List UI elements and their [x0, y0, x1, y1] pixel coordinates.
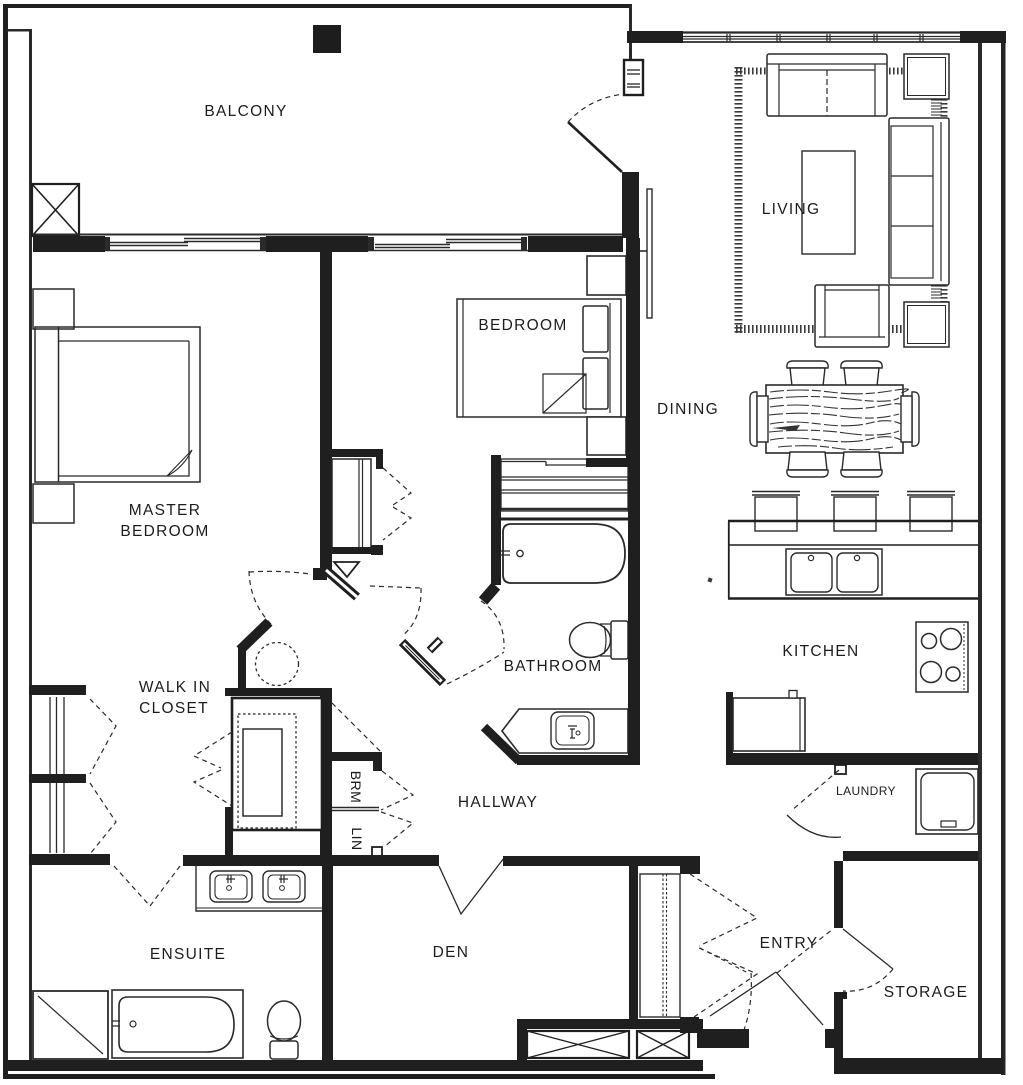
svg-text:BATHROOM: BATHROOM	[504, 658, 603, 675]
svg-text:DINING: DINING	[657, 401, 719, 418]
svg-text:BEDROOM: BEDROOM	[478, 317, 567, 334]
svg-text:HALLWAY: HALLWAY	[458, 794, 538, 811]
svg-text:DEN: DEN	[433, 944, 470, 961]
svg-text:LAUNDRY: LAUNDRY	[836, 784, 896, 798]
svg-text:BALCONY: BALCONY	[204, 103, 287, 120]
svg-text:LIVING: LIVING	[762, 201, 821, 218]
svg-text:STORAGE: STORAGE	[884, 984, 969, 1001]
svg-text:MASTER: MASTER	[129, 502, 201, 519]
svg-text:KITCHEN: KITCHEN	[782, 643, 859, 660]
svg-text:ENSUITE: ENSUITE	[150, 946, 226, 963]
svg-text:WALK IN: WALK IN	[139, 679, 211, 696]
svg-text:CLOSET: CLOSET	[139, 700, 209, 717]
svg-text:BEDROOM: BEDROOM	[120, 523, 209, 540]
svg-text:LIN: LIN	[349, 827, 365, 850]
svg-text:BRM: BRM	[348, 771, 364, 804]
svg-text:ENTRY: ENTRY	[760, 935, 819, 952]
